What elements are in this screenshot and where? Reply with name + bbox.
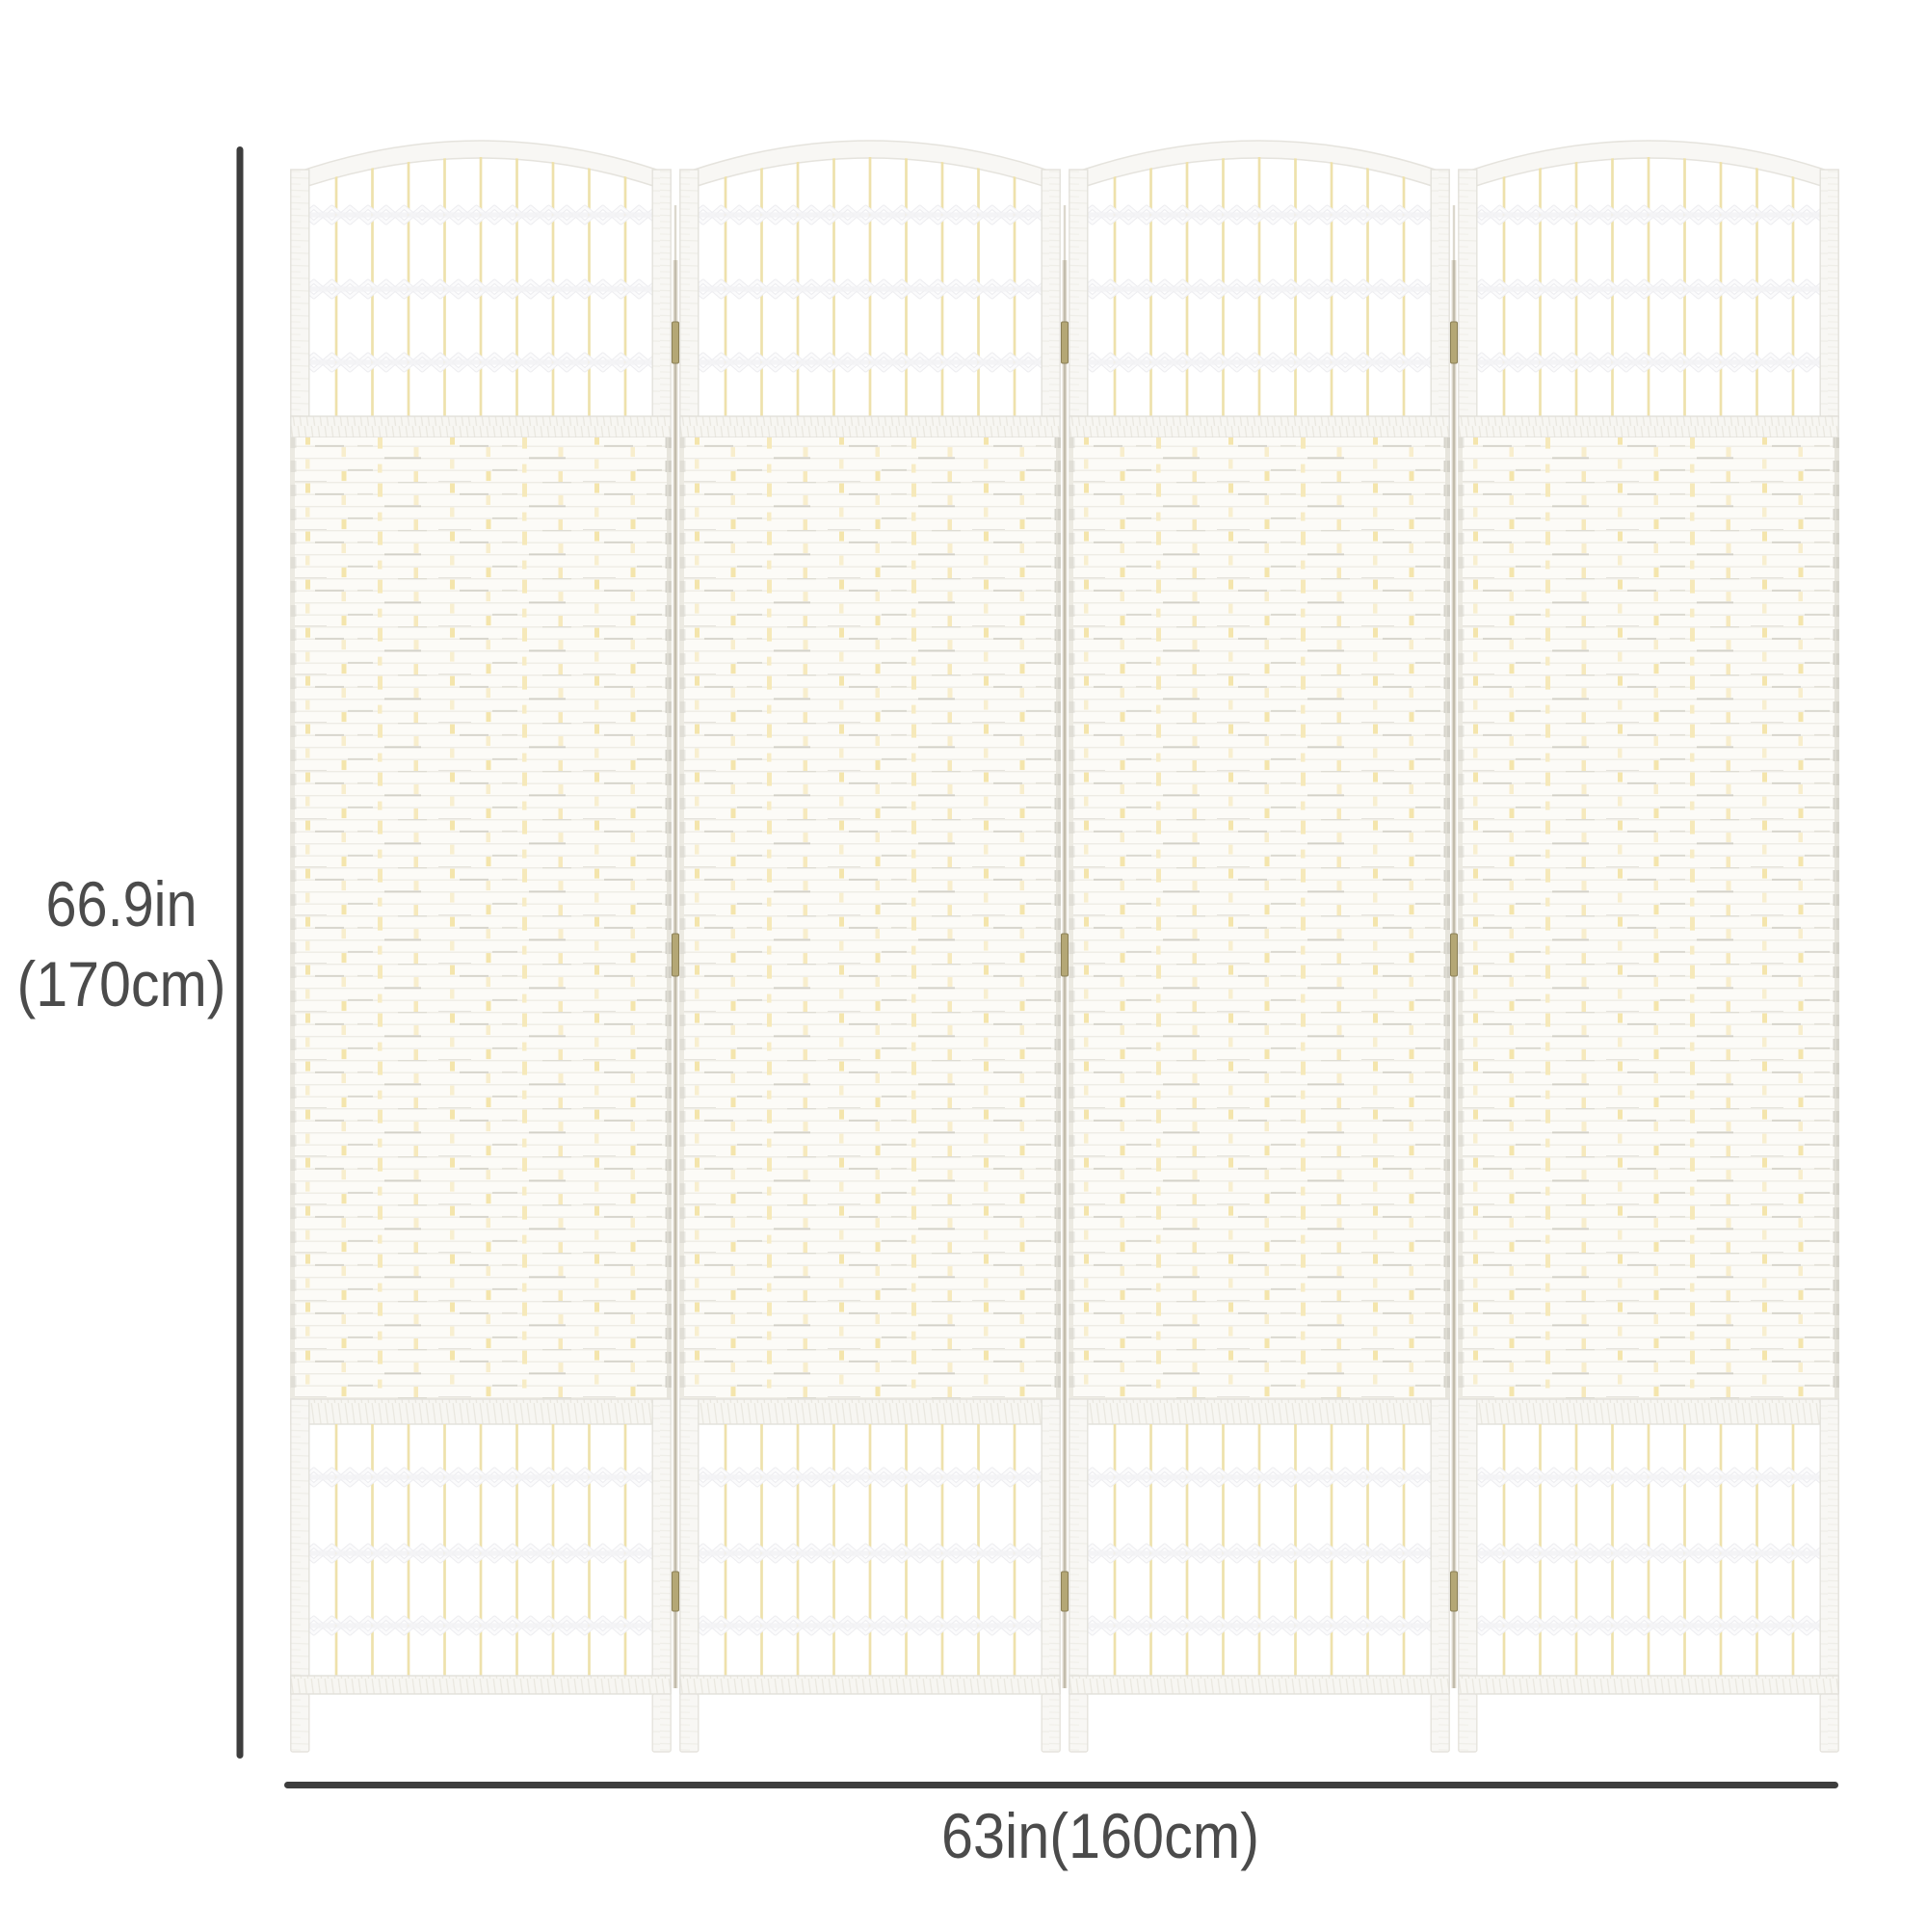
svg-text:63in(160cm): 63in(160cm) (941, 1800, 1259, 1871)
svg-text:66.9in: 66.9in (46, 868, 198, 940)
svg-text:(170cm): (170cm) (17, 948, 226, 1019)
